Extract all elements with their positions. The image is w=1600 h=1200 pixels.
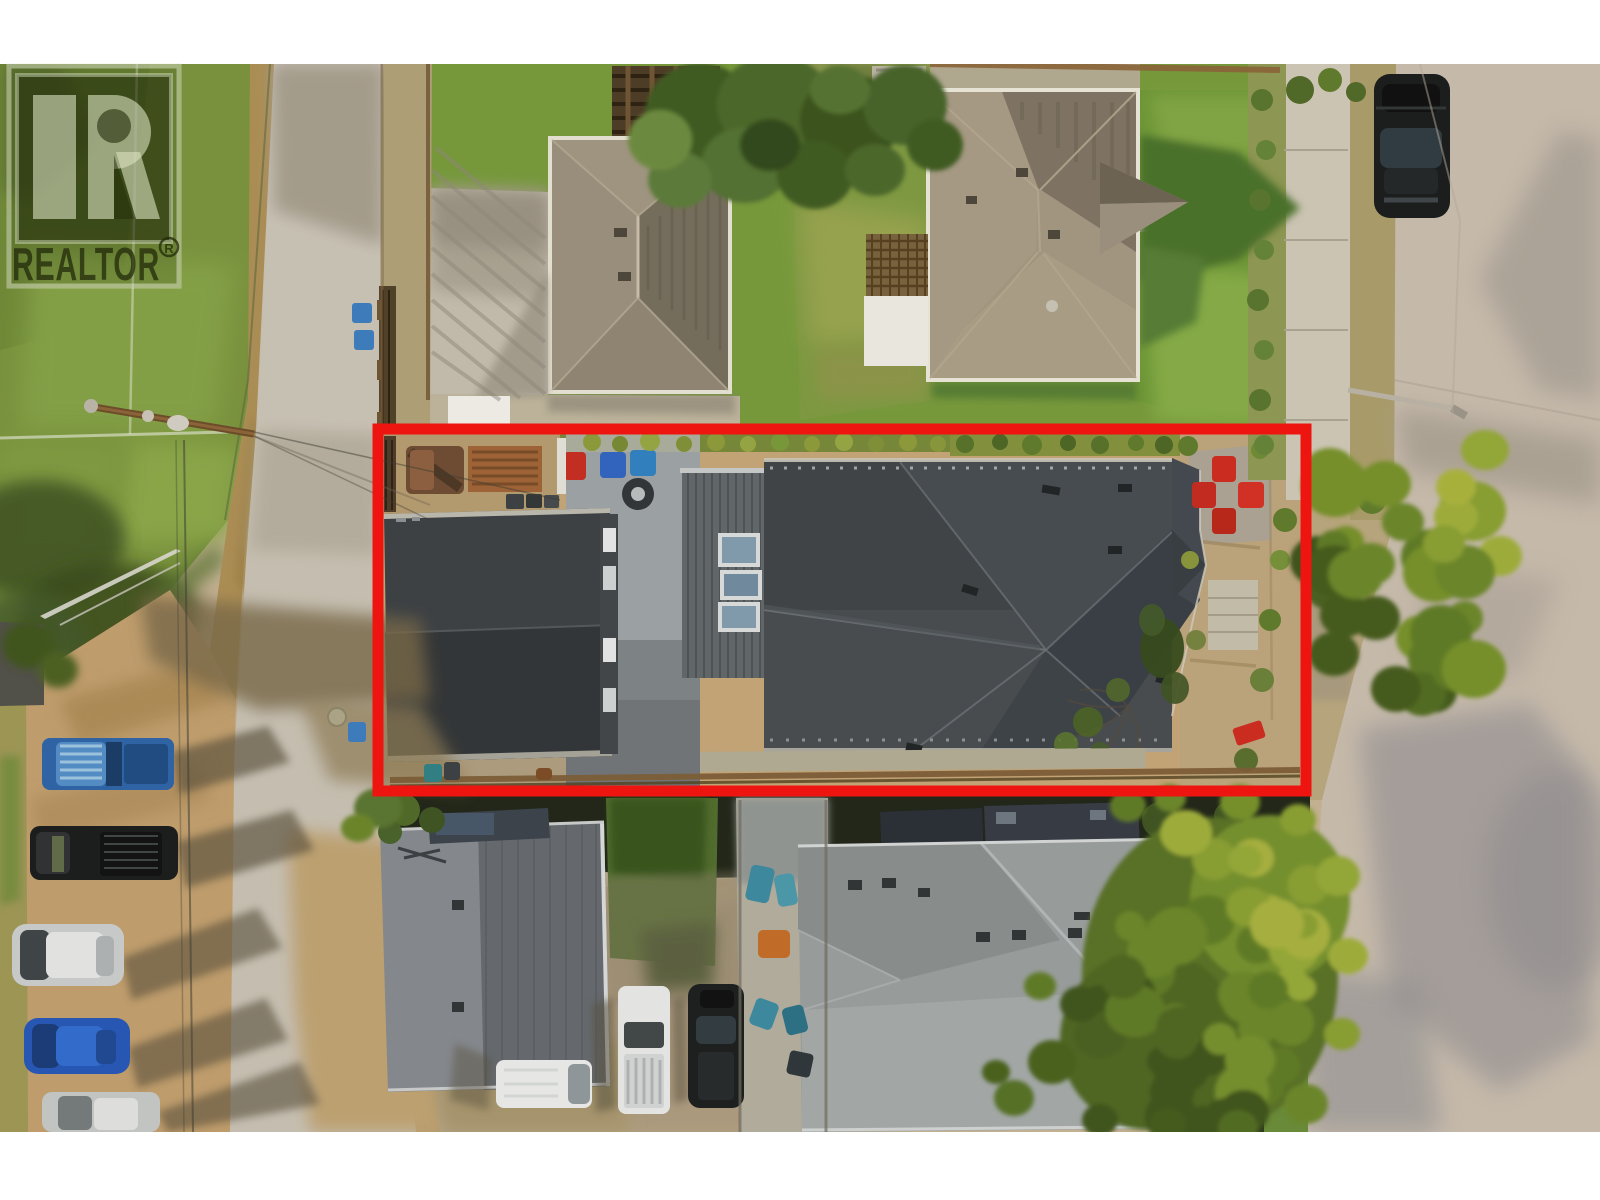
svg-text:REALTOR: REALTOR bbox=[12, 238, 160, 290]
svg-text:R: R bbox=[164, 241, 174, 256]
